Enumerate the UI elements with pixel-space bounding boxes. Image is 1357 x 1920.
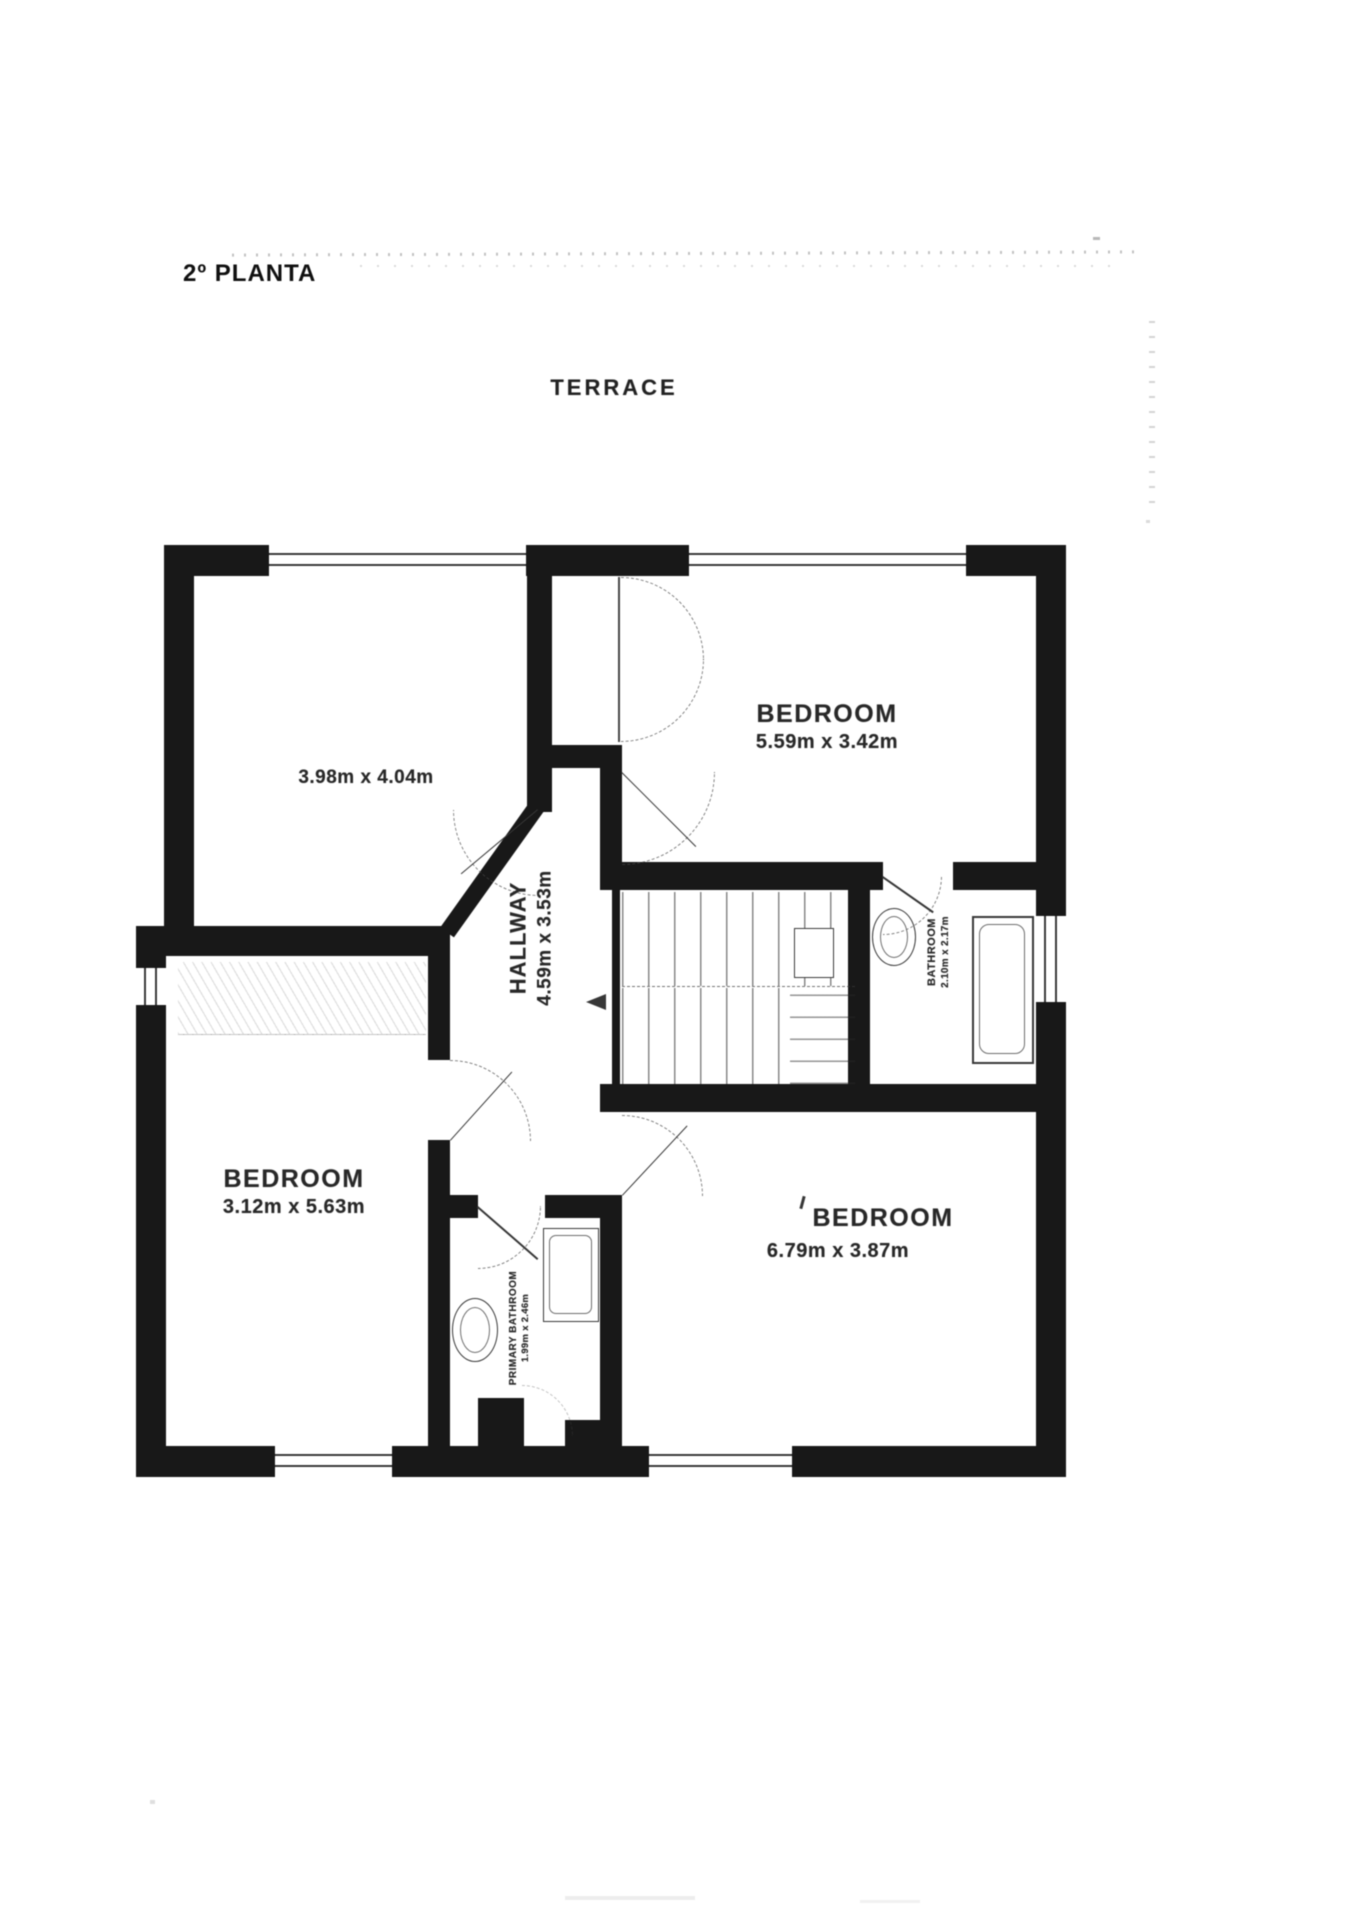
toilet-bowl <box>880 916 908 958</box>
window <box>646 1446 798 1477</box>
door-swing-arc <box>621 577 704 660</box>
room-name: HALLWAY <box>504 870 532 1005</box>
room-label-hallway: HALLWAY 4.59m x 3.53m <box>504 870 557 1005</box>
window <box>272 1446 398 1477</box>
wall <box>545 1195 600 1218</box>
wall <box>428 1140 450 1446</box>
page-title: 2º PLANTA <box>183 260 316 288</box>
door-swing-arc <box>621 659 704 742</box>
door-swing-arc <box>450 1060 531 1141</box>
wall <box>953 862 1066 890</box>
wall <box>1036 545 1066 913</box>
bathtub-basin <box>979 924 1025 1054</box>
room-label-bedroom-bottom-right-name: BEDROOM <box>812 1203 953 1233</box>
staircase-break-line <box>622 986 855 987</box>
wall-stub <box>478 1398 524 1446</box>
wall <box>600 1084 622 1112</box>
room-dimensions: 3.12m x 5.63m <box>223 1194 365 1220</box>
room-name: BATHROOM <box>925 916 939 988</box>
staircase-landing-post <box>794 928 834 978</box>
wall <box>428 956 450 1060</box>
room-dimensions: 1.99m x 2.46m <box>520 1271 533 1385</box>
scan-noise <box>150 1800 155 1804</box>
room-name: BEDROOM <box>756 699 898 729</box>
scan-noise <box>1149 318 1155 503</box>
room-label-bedroom-bottom-right-dimensions: 6.79m x 3.87m <box>767 1238 909 1264</box>
wall <box>136 926 450 956</box>
terrace-label: TERRACE <box>550 375 677 401</box>
scan-noise <box>360 265 1120 267</box>
room-dimensions: 5.59m x 3.42m <box>756 729 898 755</box>
wardrobe-hatch <box>178 962 426 1035</box>
wall <box>600 862 883 890</box>
scanned-floorplan-page: 2º PLANTA TERRACE <box>0 0 1357 1920</box>
room-dimensions: 2.10m x 2.17m <box>939 916 953 988</box>
wall <box>792 1446 1066 1477</box>
shower-tray <box>549 1235 592 1314</box>
scan-noise <box>232 250 1137 256</box>
window <box>1036 913 1066 1008</box>
staircase-winders <box>790 988 855 1084</box>
wall <box>136 1446 272 1477</box>
wall <box>1036 1002 1066 1477</box>
wall <box>551 745 622 768</box>
room-label-bathroom: BATHROOM 2.10m x 2.17m <box>925 916 953 988</box>
room-dimensions: 4.59m x 3.53m <box>532 870 558 1005</box>
scan-layer: 2º PLANTA TERRACE <box>0 0 1357 1920</box>
scan-noise <box>565 1896 695 1900</box>
room-label-bedroom-top-right: BEDROOM 5.59m x 3.42m <box>756 699 898 755</box>
room-label-bedroom-left: BEDROOM 3.12m x 5.63m <box>223 1164 365 1220</box>
closet-front-line <box>618 577 620 742</box>
staircase-lower-run <box>622 988 790 1084</box>
shower-curtain-arc <box>522 1385 573 1436</box>
toilet-bowl <box>460 1307 490 1353</box>
wall <box>164 545 194 956</box>
wall <box>612 890 620 1084</box>
scan-artifact <box>799 1196 805 1209</box>
wall <box>392 1446 646 1477</box>
wall <box>600 1195 622 1446</box>
stairs-direction-arrow-icon <box>586 994 606 1010</box>
scan-noise <box>1093 237 1100 240</box>
door-swing-arc <box>622 1115 703 1196</box>
wall <box>136 1005 166 1477</box>
room-name: PRIMARY BATHROOM <box>507 1271 520 1385</box>
room-name: BEDROOM <box>223 1164 365 1194</box>
room-label-primary-bathroom: PRIMARY BATHROOM 1.99m x 2.46m <box>507 1271 533 1385</box>
window <box>686 545 972 576</box>
wall <box>527 545 552 812</box>
window <box>266 545 532 576</box>
wall <box>428 1195 478 1218</box>
scan-noise <box>1146 520 1150 523</box>
scan-noise <box>860 1900 920 1903</box>
room-label-top-left-dimensions: 3.98m x 4.04m <box>298 765 433 791</box>
wall <box>622 1084 1036 1112</box>
